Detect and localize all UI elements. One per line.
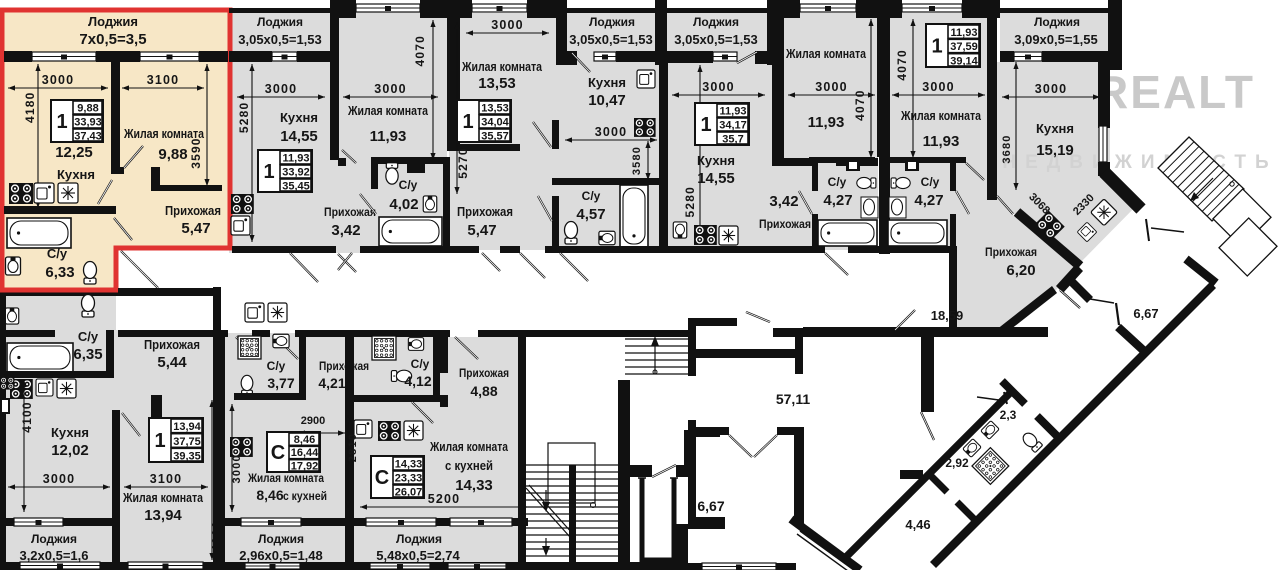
svg-text:Кухня: Кухня <box>588 75 626 90</box>
svg-text:Лоджия: Лоджия <box>693 15 739 29</box>
svg-text:4100: 4100 <box>20 401 34 433</box>
svg-text:5280: 5280 <box>237 102 251 133</box>
svg-text:4070: 4070 <box>413 35 427 67</box>
svg-text:С/у: С/у <box>399 178 418 192</box>
svg-text:Жилая комната: Жилая комната <box>429 439 508 454</box>
svg-text:Лоджия: Лоджия <box>88 14 138 29</box>
svg-text:С: С <box>271 442 285 464</box>
svg-text:Кухня: Кухня <box>697 153 735 168</box>
svg-text:33,92: 33,92 <box>282 167 310 179</box>
svg-text:14,33: 14,33 <box>395 459 423 471</box>
svg-text:3000: 3000 <box>922 80 955 94</box>
svg-text:5280: 5280 <box>683 186 697 218</box>
svg-text:1: 1 <box>263 161 274 183</box>
svg-text:Прихожая: Прихожая <box>459 366 509 380</box>
svg-text:С/у: С/у <box>582 189 601 203</box>
svg-text:26,07: 26,07 <box>395 487 423 499</box>
svg-text:8,46: 8,46 <box>294 434 315 446</box>
svg-text:3,05х0,5=1,53: 3,05х0,5=1,53 <box>569 32 653 47</box>
svg-text:с кухней: с кухней <box>445 458 493 473</box>
svg-text:34,17: 34,17 <box>719 120 747 132</box>
svg-text:11,93: 11,93 <box>951 27 978 39</box>
svg-text:1: 1 <box>931 36 942 58</box>
svg-text:1: 1 <box>700 114 711 136</box>
svg-text:5,44: 5,44 <box>157 354 187 371</box>
svg-text:Лоджия: Лоджия <box>1034 15 1080 29</box>
svg-text:6,35: 6,35 <box>73 346 102 363</box>
svg-text:REALT: REALT <box>1095 66 1255 118</box>
svg-text:2,92: 2,92 <box>945 456 969 470</box>
svg-text:3,42: 3,42 <box>331 222 360 239</box>
svg-text:4,46: 4,46 <box>905 517 930 532</box>
svg-text:Прихожая: Прихожая <box>165 203 221 218</box>
svg-text:3000: 3000 <box>491 18 524 32</box>
svg-text:Прихожая: Прихожая <box>319 359 369 373</box>
svg-text:С/у: С/у <box>828 175 847 189</box>
svg-text:4180: 4180 <box>23 91 37 123</box>
svg-text:4,27: 4,27 <box>823 192 852 209</box>
svg-text:15,19: 15,19 <box>1036 142 1074 159</box>
svg-text:13,94: 13,94 <box>173 421 201 433</box>
svg-text:57,11: 57,11 <box>776 391 810 407</box>
svg-text:Лоджия: Лоджия <box>396 532 442 546</box>
svg-text:С/у: С/у <box>267 359 286 373</box>
svg-text:4,88: 4,88 <box>470 383 497 399</box>
svg-text:3100: 3100 <box>147 73 180 87</box>
svg-text:2900: 2900 <box>301 415 325 427</box>
svg-text:6,67: 6,67 <box>697 498 724 514</box>
svg-text:3590: 3590 <box>189 137 203 169</box>
svg-text:С/у: С/у <box>411 357 430 371</box>
svg-text:6,67: 6,67 <box>1133 306 1158 321</box>
svg-text:4,02: 4,02 <box>389 196 418 213</box>
svg-text:34,04: 34,04 <box>481 117 509 129</box>
svg-text:5200: 5200 <box>428 492 461 506</box>
svg-text:с кухней: с кухней <box>283 489 327 503</box>
svg-text:Кухня: Кухня <box>57 167 95 182</box>
svg-text:8,46: 8,46 <box>256 487 283 503</box>
svg-text:6,20: 6,20 <box>1006 262 1035 279</box>
svg-text:14,55: 14,55 <box>280 128 318 145</box>
svg-text:3000: 3000 <box>42 73 75 87</box>
svg-text:5,47: 5,47 <box>181 220 210 237</box>
svg-text:35,45: 35,45 <box>282 181 310 193</box>
svg-text:11,93: 11,93 <box>283 153 310 165</box>
svg-text:2810: 2810 <box>347 433 359 462</box>
svg-text:1: 1 <box>56 111 67 133</box>
svg-text:7х0,5=3,5: 7х0,5=3,5 <box>79 31 146 48</box>
svg-text:5270: 5270 <box>456 147 470 179</box>
svg-text:3000: 3000 <box>231 454 243 483</box>
svg-text:Прихожая: Прихожая <box>985 245 1037 259</box>
svg-text:18,59: 18,59 <box>931 308 964 323</box>
svg-text:Жилая комната: Жилая комната <box>247 471 324 485</box>
svg-text:16,44: 16,44 <box>291 447 319 459</box>
svg-text:39,14: 39,14 <box>950 56 978 68</box>
svg-text:23,33: 23,33 <box>395 473 423 485</box>
svg-text:3,05х0,5=1,53: 3,05х0,5=1,53 <box>674 32 758 47</box>
svg-text:Лоджия: Лоджия <box>589 15 635 29</box>
svg-text:3000: 3000 <box>265 82 298 96</box>
svg-text:3000: 3000 <box>702 80 735 94</box>
svg-text:3000: 3000 <box>1035 82 1068 96</box>
svg-text:4,27: 4,27 <box>914 192 943 209</box>
svg-text:3,77: 3,77 <box>267 375 294 391</box>
svg-text:С/у: С/у <box>921 175 940 189</box>
svg-text:5,47: 5,47 <box>467 222 496 239</box>
svg-text:12,02: 12,02 <box>51 442 89 459</box>
svg-text:4,12: 4,12 <box>404 373 431 389</box>
svg-text:37,43: 37,43 <box>74 131 102 143</box>
svg-text:11,93: 11,93 <box>370 128 407 145</box>
svg-text:3,42: 3,42 <box>769 193 798 210</box>
svg-text:3580: 3580 <box>631 146 643 175</box>
svg-text:3680: 3680 <box>1001 134 1013 163</box>
svg-text:37,75: 37,75 <box>173 436 201 448</box>
svg-text:11,93: 11,93 <box>720 106 747 118</box>
svg-text:Прихожая: Прихожая <box>759 217 811 231</box>
svg-text:12,25: 12,25 <box>55 144 93 161</box>
svg-text:10,47: 10,47 <box>588 92 626 109</box>
svg-text:11,93: 11,93 <box>923 133 960 150</box>
svg-text:Кухня: Кухня <box>51 425 89 440</box>
svg-text:4070: 4070 <box>895 49 909 81</box>
svg-text:4,21: 4,21 <box>318 375 345 391</box>
svg-text:Жилая комната: Жилая комната <box>900 108 981 123</box>
svg-text:35,57: 35,57 <box>481 131 509 143</box>
svg-text:2,3: 2,3 <box>1000 408 1017 422</box>
svg-text:2,96х0,5=1,48: 2,96х0,5=1,48 <box>239 548 323 563</box>
svg-text:4,57: 4,57 <box>576 206 605 223</box>
svg-text:3000: 3000 <box>43 472 76 486</box>
svg-text:С: С <box>375 467 389 489</box>
svg-text:9,88: 9,88 <box>158 146 187 163</box>
svg-text:13,53: 13,53 <box>478 75 516 92</box>
svg-text:3000: 3000 <box>815 80 848 94</box>
svg-text:6,33: 6,33 <box>45 264 74 281</box>
svg-text:3000: 3000 <box>595 125 628 139</box>
svg-text:Лоджия: Лоджия <box>31 532 77 546</box>
svg-text:5,48х0,5=2,74: 5,48х0,5=2,74 <box>376 548 460 563</box>
svg-text:Прихожая: Прихожая <box>144 337 200 352</box>
svg-text:Жилая комната: Жилая комната <box>347 103 428 118</box>
svg-text:1: 1 <box>462 111 473 133</box>
svg-text:4070: 4070 <box>853 89 867 121</box>
svg-text:39,35: 39,35 <box>173 451 201 463</box>
svg-text:Лоджия: Лоджия <box>258 532 304 546</box>
svg-text:37,59: 37,59 <box>950 41 978 53</box>
svg-text:11,93: 11,93 <box>808 114 845 131</box>
svg-text:Прихожая: Прихожая <box>457 204 513 219</box>
svg-text:3000: 3000 <box>374 82 407 96</box>
svg-text:Жилая комната: Жилая комната <box>123 126 204 141</box>
svg-text:С/у: С/у <box>78 329 99 344</box>
svg-text:3,2х0,5=1,6: 3,2х0,5=1,6 <box>19 548 88 563</box>
svg-text:Жилая комната: Жилая комната <box>122 490 203 505</box>
svg-text:14,33: 14,33 <box>455 477 493 494</box>
svg-text:35,7: 35,7 <box>722 134 743 146</box>
svg-text:3,05х0,5=1,53: 3,05х0,5=1,53 <box>238 32 322 47</box>
svg-text:9,88: 9,88 <box>77 103 98 115</box>
svg-text:Лоджия: Лоджия <box>257 15 303 29</box>
svg-text:13,94: 13,94 <box>144 507 182 524</box>
svg-text:13,53: 13,53 <box>481 103 509 115</box>
svg-text:3,09х0,5=1,55: 3,09х0,5=1,55 <box>1014 32 1098 47</box>
svg-text:Прихожая: Прихожая <box>324 205 376 219</box>
svg-text:3100: 3100 <box>150 472 183 486</box>
svg-text:33,93: 33,93 <box>74 117 102 129</box>
svg-text:1: 1 <box>154 430 165 452</box>
svg-text:Жилая комната: Жилая комната <box>461 59 542 74</box>
svg-text:Кухня: Кухня <box>280 110 318 125</box>
svg-text:Жилая комната: Жилая комната <box>785 46 866 61</box>
svg-text:14,55: 14,55 <box>697 170 735 187</box>
svg-text:Кухня: Кухня <box>1036 121 1074 136</box>
